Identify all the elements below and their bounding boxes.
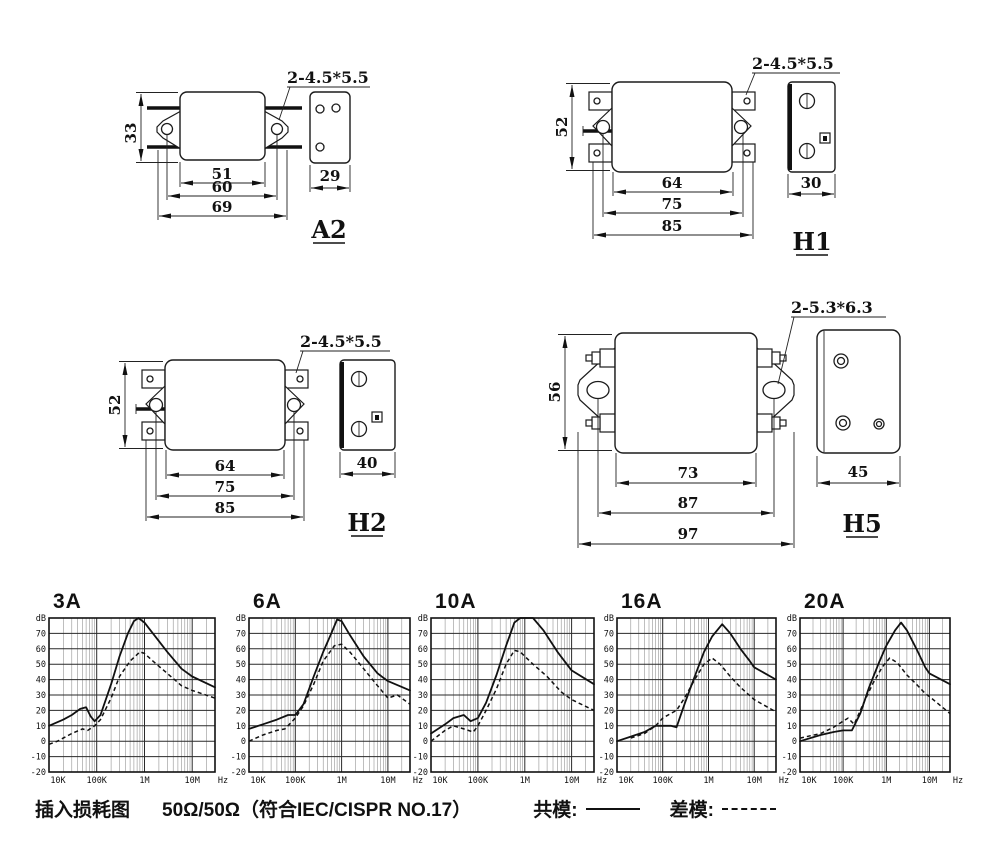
a2-model-label: A2 [310,215,346,244]
y-tick: 0 [41,737,46,747]
a2-left-mounting-hole [162,124,173,135]
a2-right-mounting-hole [272,124,283,135]
h2-dimension-drawing: 52 64 75 85 2-4.5*5.5 40 H2 [100,320,430,555]
chart-svg: dB706050403020100-10-2010K100K1M10MHz [227,612,426,788]
insertion-loss-chart-16a: 16A dB706050403020100-10-2010K100K1M10MH… [595,590,805,795]
h2-dim-w2: 75 [215,478,236,496]
x-tick: 10K [618,776,634,786]
a2-hole-note: 2-4.5*5.5 [287,68,369,87]
x-tick: 10M [922,776,937,786]
y-tick: 60 [236,645,246,655]
x-tick: 10M [747,776,762,786]
x-tick: 1M [139,776,149,786]
h5-dim-depth: 45 [848,463,869,481]
h2-dim-height: 52 [106,395,124,416]
y-tick: 70 [787,629,797,639]
h1-dim-w2: 75 [662,195,683,213]
y-tick: 60 [418,645,428,655]
y-tick: dB [36,614,46,624]
x-tick: 10K [801,776,817,786]
y-tick: 20 [418,706,428,716]
y-tick: 70 [418,629,428,639]
legend-common-mode-line [586,808,640,810]
y-tick: 30 [418,691,428,701]
a2-dim-height: 33 [122,123,140,144]
h5-side-view [817,330,900,453]
chart-title-3a: 3A [53,590,237,614]
y-tick: 60 [787,645,797,655]
insertion-loss-chart-10a: 10A dB706050403020100-10-2010K100K1M10MH… [409,590,619,795]
chart-svg: dB706050403020100-10-2010K100K1M10MHz [778,612,966,788]
y-tick: 10 [604,722,614,732]
h1-left-mounting-hole [597,121,610,134]
y-tick: 70 [604,629,614,639]
y-tick: 40 [787,676,797,686]
h5-filter-body [615,333,757,453]
y-tick: 50 [418,660,428,670]
h2-dim-w1: 64 [215,457,236,475]
y-tick: 10 [418,722,428,732]
y-tick: 40 [418,676,428,686]
y-tick: 0 [792,737,797,747]
y-tick: dB [418,614,428,624]
insertion-loss-chart-6a: 6A dB706050403020100-10-2010K100K1M10MHz [227,590,437,795]
chart-title-10a: 10A [435,590,619,614]
a2-filter-body [180,92,265,160]
h2-filter-body [165,360,285,450]
x-tick: 1M [520,776,530,786]
x-tick: 100K [833,776,854,786]
h2-left-mounting-hole [150,399,163,412]
y-tick: 60 [604,645,614,655]
x-tick: 10K [432,776,448,786]
caption-title: 插入损耗图 [35,795,130,822]
h1-right-mounting-hole [735,121,748,134]
y-tick: 20 [604,706,614,716]
y-tick: 30 [604,691,614,701]
y-tick: 0 [423,737,428,747]
h2-right-mounting-hole [288,399,301,412]
x-tick: 100K [86,776,107,786]
y-tick: -20 [599,768,614,778]
legend-differential-mode-line [722,808,776,810]
y-tick: 70 [236,629,246,639]
y-tick: -10 [231,753,246,763]
h2-model-label: H2 [347,508,386,537]
x-tick: 1M [881,776,891,786]
y-tick: 50 [236,660,246,670]
y-tick: 40 [236,676,246,686]
x-tick: Hz [953,776,963,786]
a2-dim-w3: 69 [212,198,233,216]
a2-dim-w2: 60 [212,178,233,196]
h1-dim-depth: 30 [801,174,822,192]
insertion-loss-chart-3a: 3A dB706050403020100-10-2010K100K1M10MHz [27,590,237,795]
h5-dim-w3: 97 [678,525,699,543]
chart-svg: dB706050403020100-10-2010K100K1M10MHz [595,612,792,788]
h2-dim-w3: 85 [215,499,236,517]
h1-model-label: H1 [792,227,831,256]
a2-dim-depth: 29 [320,167,341,185]
y-tick: 30 [787,691,797,701]
h5-dim-w2: 87 [678,494,699,512]
y-tick: 40 [36,676,46,686]
h2-hole-note: 2-4.5*5.5 [300,332,382,351]
h5-dim-height: 56 [546,382,564,403]
chart-title-20a: 20A [804,590,988,614]
insertion-loss-chart-20a: 20A dB706050403020100-10-2010K100K1M10MH… [778,590,988,795]
h5-dimension-drawing: 56 73 87 97 2-5.3*6.3 45 H5 [530,290,930,575]
h5-left-mounting-hole [587,382,609,399]
y-tick: 70 [36,629,46,639]
h5-dim-w1: 73 [678,464,699,482]
y-tick: -20 [413,768,428,778]
x-tick: 10K [50,776,66,786]
y-tick: -20 [231,768,246,778]
h1-dimension-drawing: 52 64 75 85 2-4.5*5.5 30 H1 [540,40,870,270]
x-tick: 100K [285,776,306,786]
x-tick: 1M [703,776,713,786]
h2-side-view [340,360,395,450]
y-tick: 0 [609,737,614,747]
y-tick: dB [236,614,246,624]
h1-filter-body [612,82,732,172]
x-tick: 10M [564,776,579,786]
y-tick: 20 [787,706,797,716]
y-tick: -10 [599,753,614,763]
y-tick: dB [604,614,614,624]
y-tick: 0 [241,737,246,747]
y-tick: 40 [604,676,614,686]
caption-impedance: 50Ω/50Ω（符合IEC/CISPR NO.17） [162,795,471,822]
x-tick: 100K [468,776,489,786]
y-tick: 50 [787,660,797,670]
x-tick: 1M [336,776,346,786]
x-tick: 10M [380,776,395,786]
chart-svg: dB706050403020100-10-2010K100K1M10MHz [409,612,610,788]
y-tick: 10 [787,722,797,732]
h5-model-label: H5 [842,509,881,538]
a2-dimension-drawing: 33 51 60 69 2-4.5*5.5 29 A2 [95,55,405,255]
legend-common-mode-label: 共模: [533,795,577,822]
y-tick: -20 [782,768,797,778]
y-tick: 50 [604,660,614,670]
y-tick: dB [787,614,797,624]
a2-side-view [310,92,350,163]
y-tick: 20 [236,706,246,716]
y-tick: 20 [36,706,46,716]
h2-dim-depth: 40 [357,454,378,472]
y-tick: 30 [236,691,246,701]
h1-hole-note: 2-4.5*5.5 [752,54,834,73]
chart-svg: dB706050403020100-10-2010K100K1M10MHz [27,612,231,788]
y-tick: 50 [36,660,46,670]
y-tick: -10 [413,753,428,763]
y-tick: -10 [31,753,46,763]
x-tick: 100K [652,776,673,786]
h1-dim-w3: 85 [662,217,683,235]
figure-caption: 插入损耗图 50Ω/50Ω（符合IEC/CISPR NO.17） 共模: 差模: [35,795,965,822]
y-tick: 30 [36,691,46,701]
datasheet-page: 33 51 60 69 2-4.5*5.5 29 A2 52 64 [0,0,1000,865]
h1-dim-w1: 64 [662,174,683,192]
y-tick: 10 [236,722,246,732]
x-tick: 10K [250,776,266,786]
h5-right-mounting-hole [763,382,785,399]
y-tick: 10 [36,722,46,732]
y-tick: -10 [782,753,797,763]
h5-hole-note: 2-5.3*6.3 [791,298,873,317]
x-tick: 10M [185,776,200,786]
y-tick: -20 [31,768,46,778]
h1-dim-height: 52 [553,117,571,138]
y-tick: 60 [36,645,46,655]
legend-differential-mode-label: 差模: [670,795,714,822]
